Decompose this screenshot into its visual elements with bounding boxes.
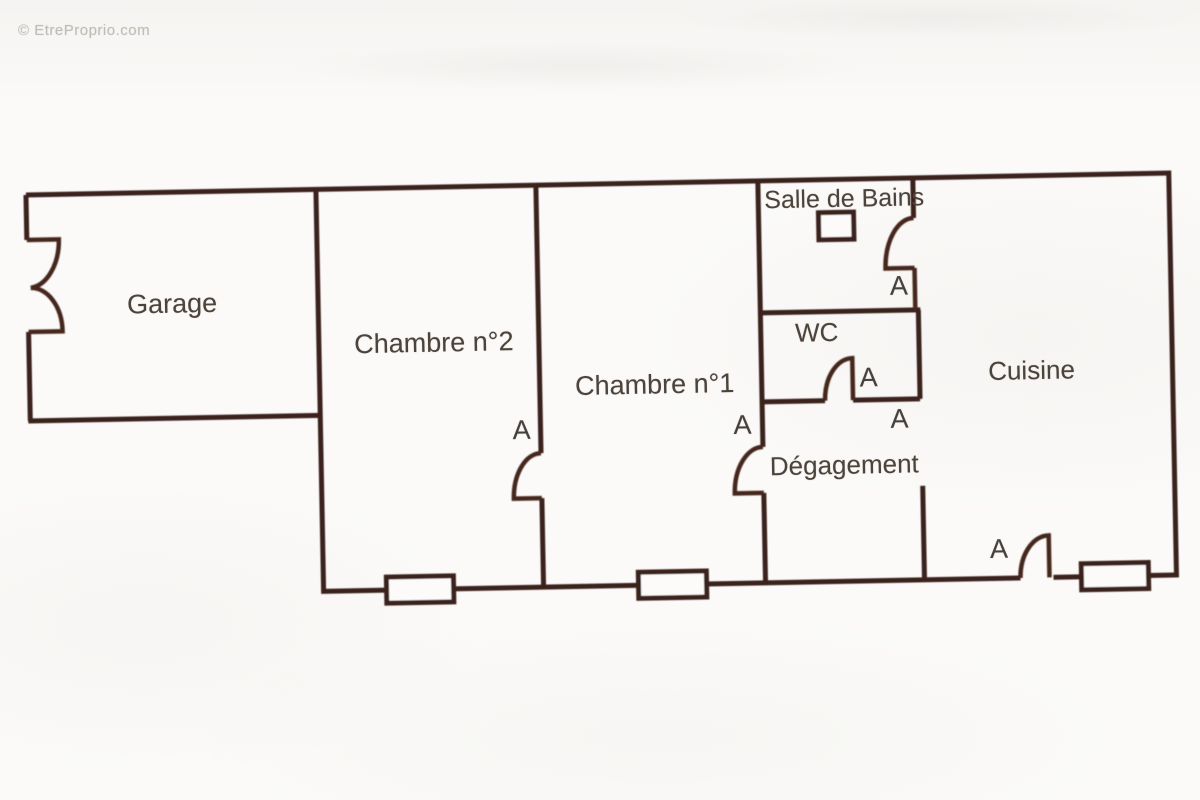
cuisine-door-arc bbox=[1020, 535, 1050, 578]
door-label-wc: A bbox=[859, 362, 878, 393]
salle-de-bains-window-icon bbox=[818, 212, 854, 240]
wc-door-arc bbox=[824, 358, 853, 401]
room-label-degagement: Dégagement bbox=[770, 448, 919, 482]
door-label-degagement-cuisine: A bbox=[890, 404, 909, 435]
room-label-cuisine: Cuisine bbox=[988, 354, 1075, 387]
door-label-chambre-1: A bbox=[733, 410, 752, 441]
room-label-salle-de-bains: Salle de Bains bbox=[764, 183, 924, 215]
chambre1-window-icon bbox=[638, 571, 706, 598]
floor-plan: Garage Chambre n°2 Chambre n°1 Salle de … bbox=[0, 0, 1200, 800]
wall-degagement-cuisine bbox=[923, 486, 925, 580]
wall-chambre1-degagement bbox=[758, 181, 766, 583]
wall-chambre2-chambre1 bbox=[536, 185, 544, 587]
chambre2-door-arc bbox=[513, 453, 542, 499]
room-label-chambre-2: Chambre n°2 bbox=[354, 326, 514, 360]
door-label-salle-de-bains: A bbox=[890, 271, 909, 302]
chambre1-door-arc bbox=[734, 447, 764, 494]
door-label-chambre-2: A bbox=[512, 415, 531, 446]
garage-door-arc bbox=[27, 239, 63, 332]
room-label-chambre-1: Chambre n°1 bbox=[575, 368, 735, 402]
room-label-wc: WC bbox=[795, 317, 839, 349]
room-label-garage: Garage bbox=[127, 288, 218, 321]
chambre2-window-icon bbox=[386, 576, 453, 603]
cuisine-window-icon bbox=[1081, 563, 1148, 590]
door-label-cuisine-exterior: A bbox=[990, 534, 1009, 565]
scanned-floor-plan-page: © EtreProprio.com bbox=[0, 0, 1200, 800]
